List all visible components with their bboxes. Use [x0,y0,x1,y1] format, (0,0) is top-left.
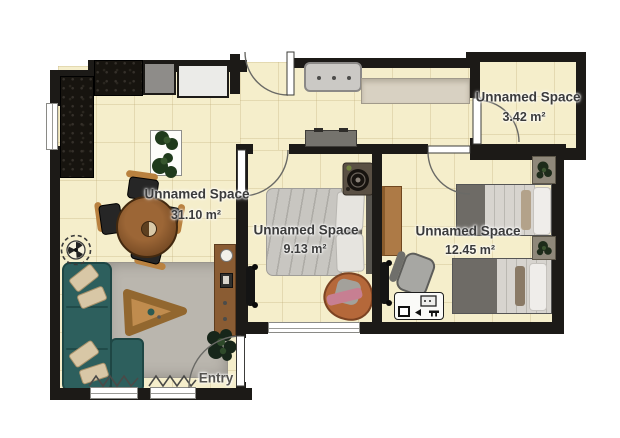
curtain-icon [148,374,198,388]
room-label-living: Unnamed Space [144,187,249,202]
radiator [380,262,389,304]
bench-button [317,76,321,80]
window-bedroom-small [268,322,360,333]
wall-bottom-bedrooms-a [236,322,268,334]
dining-table [116,196,178,258]
desk [382,186,402,256]
console-knob [223,317,227,321]
coffee-table [116,284,194,340]
wall-entry-lower [236,382,246,400]
kitchen-counter-left [60,76,94,178]
room-label-bedroom-twin: Unnamed Space [415,224,520,239]
wall-between-bedrooms [372,148,382,334]
console-knob [223,301,227,305]
ceiling-fan-icon [58,232,94,268]
single-bed-2 [452,258,552,314]
window-left [46,103,58,150]
plant-icon-shelf [148,128,186,178]
equipment-icons [395,293,443,319]
entry-label: Entry [199,371,234,386]
hall-bench [304,62,362,92]
sideboard-handle [339,128,348,132]
radiator [246,266,255,306]
table-centerpiece [141,221,157,237]
window-bottom-1 [90,387,138,399]
wall-bottom-bedrooms-b [360,322,564,334]
room-label-bedroom-small: Unnamed Space [253,223,358,238]
bench-button [347,76,351,80]
wall-hall-bedrooms-a [236,144,253,154]
bed-pillow [533,187,551,235]
room-area-bedroom-twin: 12.45 m² [445,243,495,257]
floor-storage-room [478,58,580,154]
wall-storage-right [576,52,586,160]
kitchen-counter-top [94,60,143,96]
wall-left-upper [50,70,60,106]
window-bottom-2 [150,387,196,399]
room-area-bedroom-small: 9.13 m² [283,242,326,256]
bed-accent-pillow [515,266,525,306]
room-label-storage: Unnamed Space [475,90,580,105]
bed-pillow [529,263,547,311]
hall-wardrobe [361,78,470,104]
room-area-living: 31.10 m² [171,208,221,222]
nightstand [532,236,556,260]
room-area-storage: 3.42 m² [502,110,545,124]
floor-plan: Unnamed Space 31.10 m² Unnamed Space 9.1… [0,0,620,438]
console-bowl [220,249,233,262]
curtain-icon [88,374,140,388]
hall-sideboard [305,130,357,147]
stove [143,62,176,95]
wall-storage-top [466,52,586,62]
bed-pillow [335,234,364,273]
bench-button [332,76,336,80]
fridge [177,64,229,98]
wall-left-lower [50,146,60,400]
sideboard-handle [314,128,323,132]
plant-icon-entry [202,326,240,364]
bed-foot-blanket [453,259,497,313]
plant-icon-nightstand [533,157,555,183]
plant-icon-nightstand [533,237,555,259]
wall-living-bedroom [236,144,248,334]
bed-accent-pillow [521,190,531,230]
equipment-table [394,292,444,320]
console-frame [220,273,233,288]
wall-stub [230,54,240,94]
record-player [342,162,374,196]
console-table [214,244,236,336]
nightstand [532,156,556,184]
